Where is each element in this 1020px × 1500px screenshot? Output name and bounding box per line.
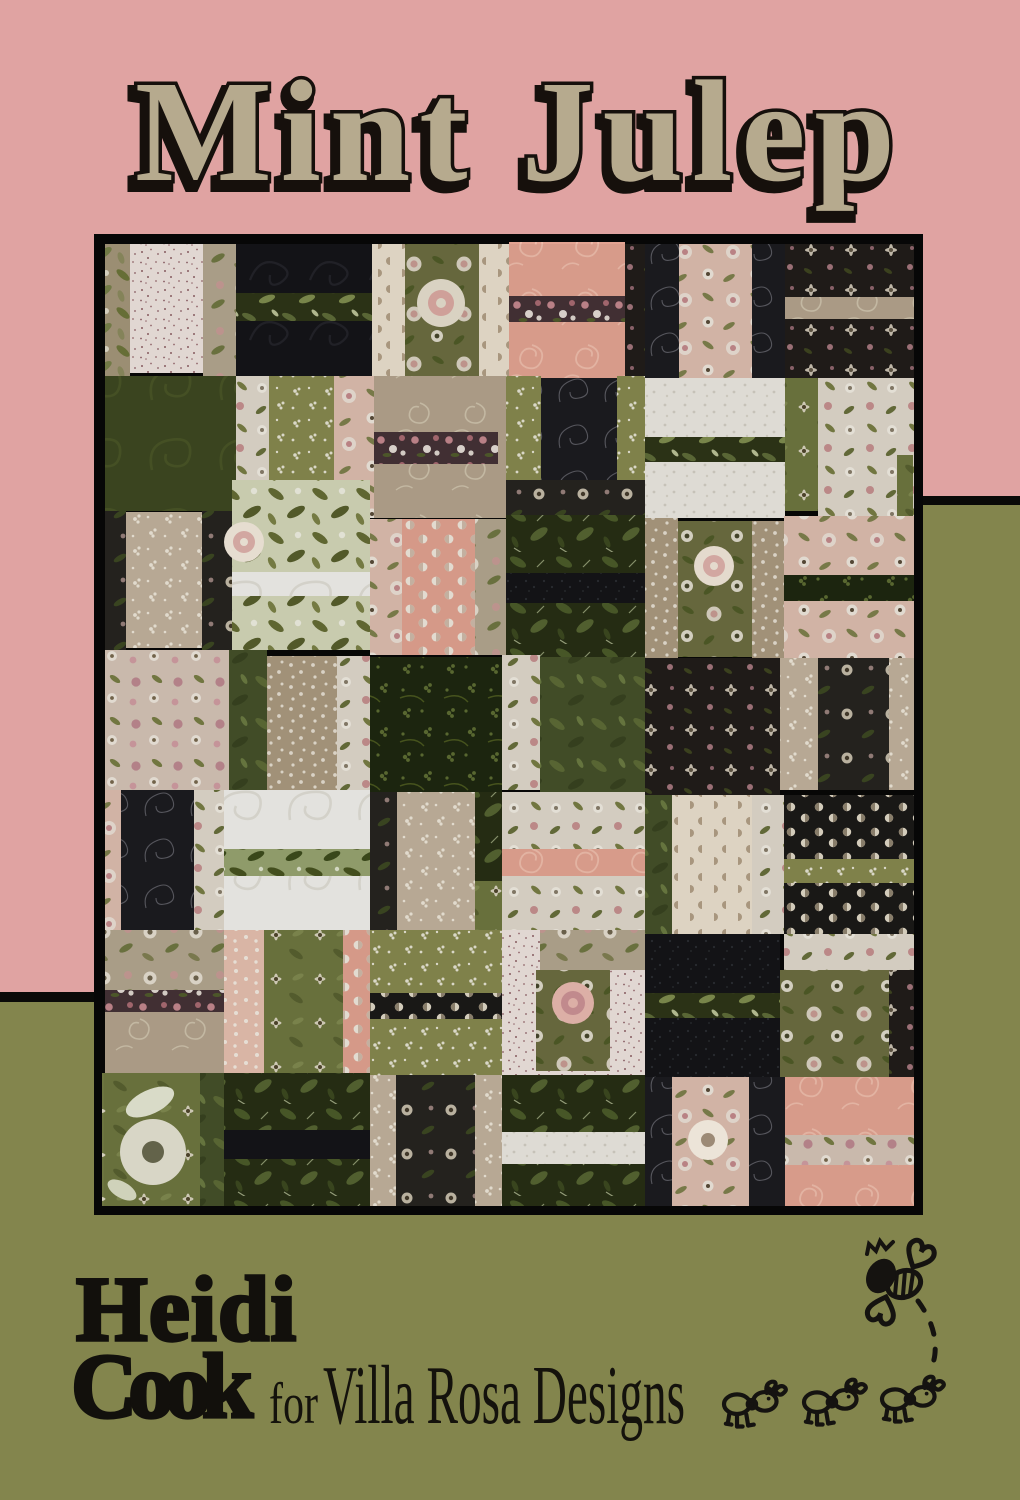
svg-text:Cook: Cook <box>71 1335 254 1437</box>
svg-text:for: for <box>269 1371 318 1436</box>
svg-text:Villa Rosa Designs: Villa Rosa Designs <box>323 1349 685 1442</box>
